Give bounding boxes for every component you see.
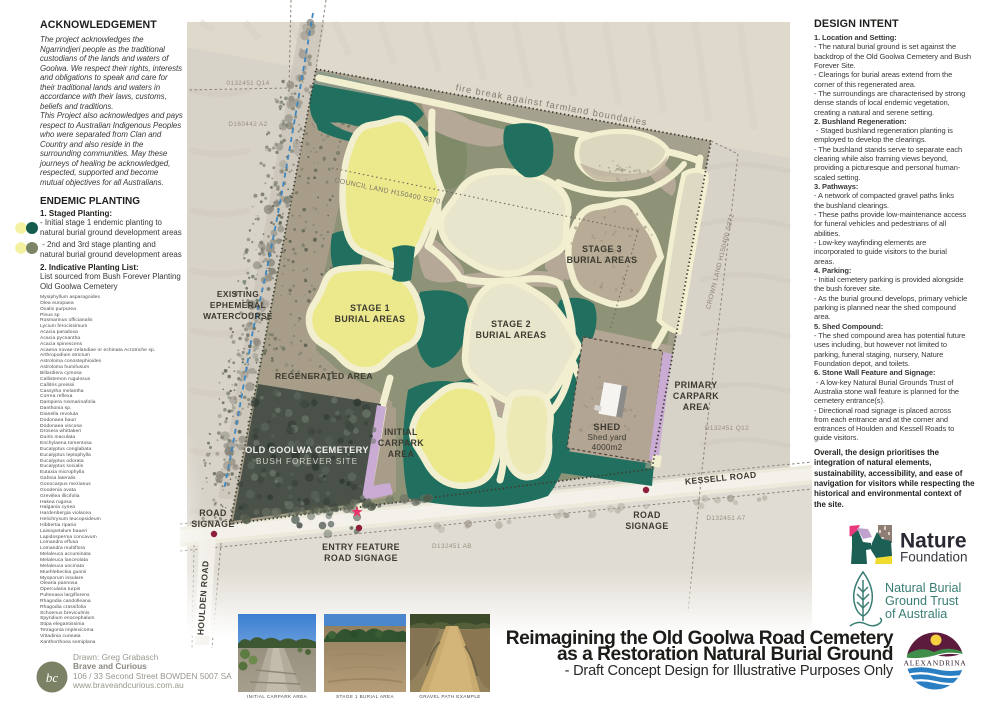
svg-text:D132451 Q12: D132451 Q12: [705, 425, 749, 432]
svg-text:EPHEMERAL: EPHEMERAL: [210, 300, 266, 310]
svg-text:BURIAL AREAS: BURIAL AREAS: [476, 330, 547, 340]
svg-text:STAGE 1: STAGE 1: [350, 303, 390, 313]
svg-text:CARPARK: CARPARK: [378, 438, 424, 448]
svg-text:D132451 AB: D132451 AB: [432, 543, 472, 550]
svg-text:AREA: AREA: [388, 449, 415, 459]
svg-text:BURIAL AREAS: BURIAL AREAS: [335, 314, 406, 324]
svg-text:ROAD: ROAD: [199, 508, 227, 518]
svg-text:ROAD: ROAD: [633, 510, 661, 520]
svg-text:STAGE 3: STAGE 3: [582, 244, 622, 254]
svg-text:Natural Burial: Natural Burial: [885, 581, 961, 595]
svg-text:4000m2: 4000m2: [592, 443, 623, 452]
svg-text:INITIAL: INITIAL: [384, 427, 418, 437]
svg-text:SIGNAGE: SIGNAGE: [191, 519, 234, 529]
svg-text:REGENERATED AREA: REGENERATED AREA: [275, 371, 373, 381]
svg-text:D160442 A2: D160442 A2: [228, 121, 267, 128]
svg-text:EXISTING: EXISTING: [217, 289, 259, 299]
svg-text:SIGNAGE: SIGNAGE: [625, 521, 668, 531]
svg-text:SHED: SHED: [593, 422, 620, 432]
svg-text:STAGE 2: STAGE 2: [491, 319, 531, 329]
svg-text:0132451 Q14: 0132451 Q14: [226, 80, 269, 87]
svg-text:PRIMARY: PRIMARY: [674, 380, 717, 390]
svg-text:ALEXANDRINA: ALEXANDRINA: [904, 659, 967, 668]
svg-text:bc: bc: [46, 670, 59, 685]
svg-text:AREA: AREA: [683, 402, 710, 412]
svg-text:Foundation: Foundation: [900, 550, 968, 565]
svg-text:Ground Trust: Ground Trust: [885, 594, 959, 608]
svg-text:BUSH FOREVER SITE: BUSH FOREVER SITE: [256, 457, 358, 466]
svg-text:BURIAL AREAS: BURIAL AREAS: [567, 255, 638, 265]
svg-text:of Australia: of Australia: [885, 607, 947, 621]
svg-text:WATERCOURSE: WATERCOURSE: [203, 311, 273, 321]
svg-text:D132451 A7: D132451 A7: [706, 515, 745, 522]
svg-text:OLD GOOLWA CEMETERY: OLD GOOLWA CEMETERY: [245, 445, 369, 455]
svg-text:ROAD SIGNAGE: ROAD SIGNAGE: [324, 553, 398, 563]
svg-text:CARPARK: CARPARK: [673, 391, 719, 401]
svg-text:Shed yard: Shed yard: [587, 433, 626, 442]
svg-text:ENTRY FEATURE: ENTRY FEATURE: [322, 542, 400, 552]
